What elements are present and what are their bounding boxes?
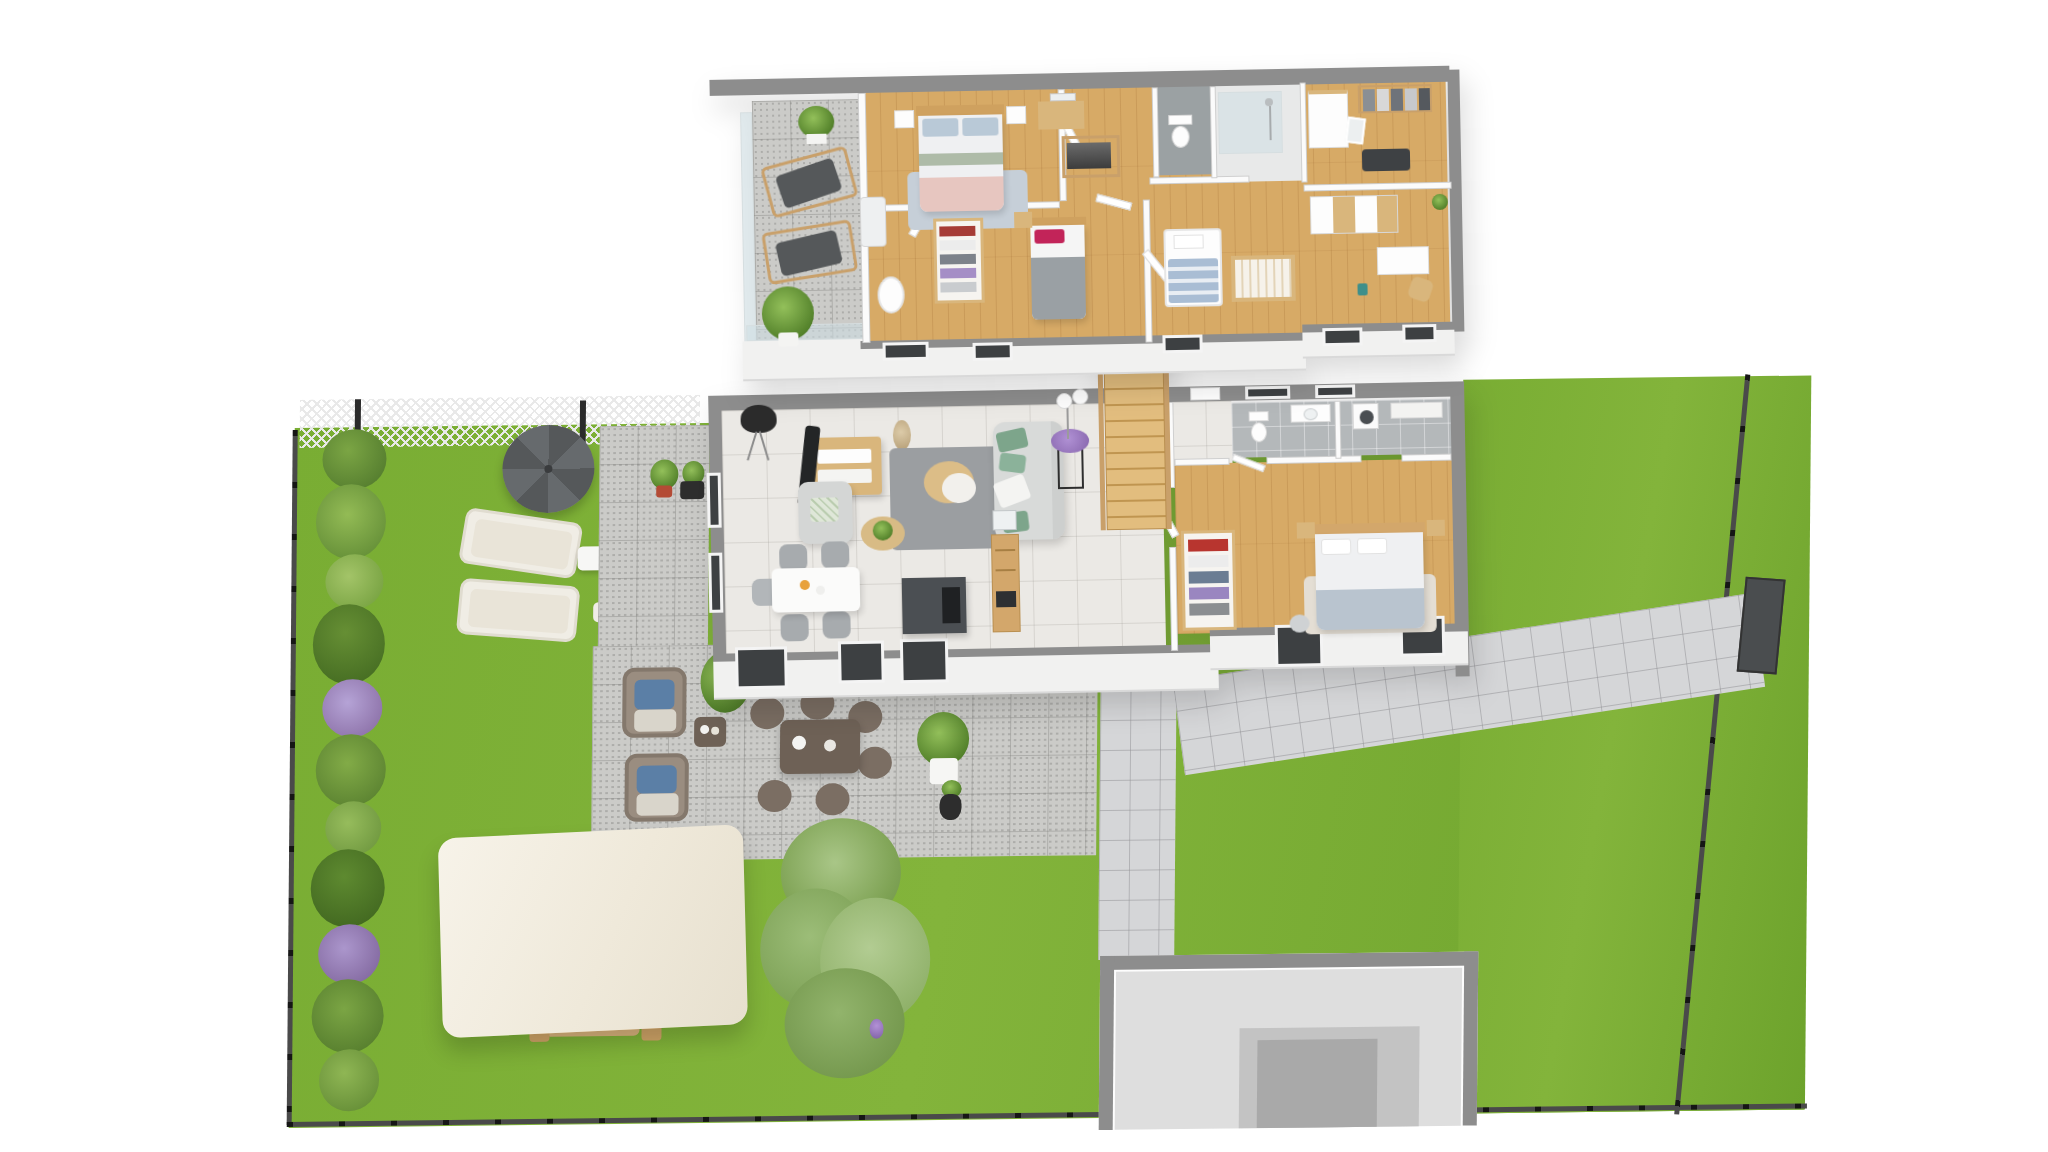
hedge-bush-purple xyxy=(318,924,381,985)
black-vase xyxy=(939,794,961,820)
hanging-clothes xyxy=(1363,89,1375,111)
leaning-mirror xyxy=(1345,117,1366,145)
clothes xyxy=(940,240,976,251)
toddler-bed xyxy=(1163,228,1222,307)
dark-rug xyxy=(1362,148,1410,171)
upper-window xyxy=(1162,335,1202,354)
office-desk xyxy=(1377,246,1430,275)
dresser xyxy=(1308,90,1349,149)
terrace-parapet-face xyxy=(742,339,869,381)
botanical-pillow xyxy=(810,497,838,522)
wall-bathroom-south xyxy=(1401,454,1451,462)
nightstand xyxy=(1014,212,1032,228)
washbasin-vanity xyxy=(1290,404,1330,423)
upper-floor xyxy=(705,44,1459,398)
path-vertical xyxy=(1098,689,1176,960)
hedge-bush xyxy=(322,429,387,490)
wardrobe-rack xyxy=(1181,530,1237,631)
plant-stand xyxy=(1057,437,1084,489)
clothes-rail xyxy=(1358,84,1433,113)
red-pot xyxy=(656,485,672,497)
large-tree xyxy=(759,807,931,1084)
dining-table xyxy=(771,567,860,613)
side-table-plant xyxy=(873,520,893,540)
ground-floor xyxy=(700,373,1481,713)
master-bed xyxy=(918,114,1004,212)
double-bed xyxy=(1315,532,1425,630)
armchair xyxy=(798,481,853,544)
toilet-tank xyxy=(1168,115,1192,125)
washing-machine xyxy=(1352,403,1378,429)
upper-window xyxy=(973,342,1013,361)
lounge-chair xyxy=(622,667,687,738)
walk-in-shower xyxy=(1218,91,1283,154)
plate xyxy=(824,739,836,751)
basement-door xyxy=(1257,1039,1378,1128)
pergola-canopy xyxy=(438,824,748,1038)
kids-bed xyxy=(1030,225,1086,320)
dining-chair xyxy=(780,614,809,642)
nightstand xyxy=(1427,520,1445,536)
window xyxy=(838,641,885,684)
pink-blanket xyxy=(919,176,1004,212)
toilet-tank xyxy=(1249,411,1269,421)
sage-band xyxy=(919,152,1003,166)
clothes xyxy=(1189,571,1229,584)
basement-wall xyxy=(1463,951,1479,1125)
hanging-clothes xyxy=(1391,89,1403,111)
clothes xyxy=(1188,555,1228,568)
window xyxy=(735,646,788,689)
bowl xyxy=(700,725,709,734)
toilet-bowl xyxy=(1251,422,1267,442)
shower-head xyxy=(1265,98,1273,106)
crib xyxy=(1231,255,1296,302)
deck-chair-canvas xyxy=(775,157,843,209)
front-door xyxy=(1190,387,1220,401)
lounger-cushion xyxy=(470,518,573,570)
black-pot xyxy=(680,481,704,499)
vanity-mirror xyxy=(1050,93,1076,101)
sofa-throw xyxy=(992,473,1031,509)
pampas-vase xyxy=(893,420,912,450)
outdoor-dining-table xyxy=(780,719,860,774)
sofa-cushion-green xyxy=(995,427,1029,453)
hedge-bush xyxy=(325,554,383,610)
sofa-cushion-green xyxy=(999,453,1027,474)
table-item xyxy=(800,580,810,590)
clothes xyxy=(1188,539,1228,552)
lounge-cushion-blue xyxy=(634,679,674,709)
blue-throw xyxy=(1316,588,1425,630)
gray-blanket xyxy=(1031,257,1086,320)
landing-railing xyxy=(1062,135,1121,178)
teal-bin xyxy=(1357,283,1367,295)
hedge-bush xyxy=(311,979,384,1054)
dining-chair xyxy=(821,541,850,569)
patio-door xyxy=(900,638,949,683)
west-window xyxy=(708,553,723,613)
pillow-blue xyxy=(962,117,998,136)
pillow-blue xyxy=(922,118,958,137)
washbasin xyxy=(1304,408,1318,420)
lounge-cushion xyxy=(636,793,678,816)
west-window xyxy=(707,473,722,528)
pillow xyxy=(1357,538,1387,555)
nightstand xyxy=(894,110,914,128)
clothes xyxy=(940,254,976,265)
vanity-desk xyxy=(1038,101,1085,130)
kitchen-shelf xyxy=(996,569,1016,571)
washer-door xyxy=(1360,410,1374,424)
lawn-right xyxy=(1457,375,1811,1113)
basement-wall xyxy=(1099,956,1115,1130)
basement-entry xyxy=(1099,951,1479,1130)
hedge-bush-purple xyxy=(322,679,383,738)
patio-side-table xyxy=(694,717,726,747)
clothes xyxy=(1189,603,1229,616)
hedge xyxy=(309,429,405,1120)
nightstand xyxy=(1297,522,1315,538)
kitchen-column xyxy=(991,534,1021,633)
clothes xyxy=(940,268,976,279)
sideboard xyxy=(1310,195,1399,235)
hanging-planter xyxy=(806,134,826,144)
tripod-lamp-head xyxy=(740,405,777,434)
induction-hob xyxy=(942,587,961,623)
north-window xyxy=(1245,386,1290,400)
hanging-clothes xyxy=(1419,88,1430,110)
table-item xyxy=(816,586,825,595)
upper-window xyxy=(1322,327,1362,346)
floor-plan-scene xyxy=(0,0,2048,1152)
lounge-cushion xyxy=(634,709,676,732)
hedge-bush xyxy=(319,1049,380,1112)
hanging-clothes xyxy=(1405,88,1417,110)
hedge-bush xyxy=(313,604,386,685)
pillow xyxy=(1321,539,1351,556)
tree-foliage xyxy=(784,967,905,1078)
upper-window xyxy=(882,342,928,361)
clothes xyxy=(940,282,976,293)
shower-column xyxy=(1269,106,1272,140)
coffee-table xyxy=(923,461,974,504)
bedroom-bench xyxy=(860,197,887,247)
glass-wall-cabinet xyxy=(992,510,1016,530)
kitchen-island xyxy=(902,577,967,634)
wall-bathroom-south xyxy=(1174,458,1229,466)
hedge-bush xyxy=(325,801,381,856)
pillow xyxy=(1173,234,1203,249)
wall-bath-laundry xyxy=(1334,401,1341,459)
deck-chair-canvas xyxy=(775,230,843,277)
hedge-bush xyxy=(315,734,386,807)
upper-window xyxy=(1402,324,1436,343)
sun-lounger xyxy=(456,578,581,643)
dining-chair xyxy=(822,611,851,639)
nightstand xyxy=(1006,106,1026,124)
bowl xyxy=(711,727,719,735)
palm-pot xyxy=(778,332,798,346)
upper-wall-east xyxy=(1447,70,1464,332)
plate xyxy=(792,736,806,750)
north-window xyxy=(1315,384,1355,398)
clothes-rack-master xyxy=(933,218,985,304)
lounge-cushion-blue xyxy=(637,765,677,793)
laundry-counter xyxy=(1390,402,1442,419)
clothes xyxy=(1189,587,1229,600)
hedge-bush xyxy=(310,849,385,928)
lounge-chair xyxy=(624,753,689,822)
lounger-cushion xyxy=(467,589,570,634)
hedge-bush xyxy=(316,484,387,560)
oven xyxy=(996,591,1016,607)
pillow-magenta xyxy=(1034,229,1064,244)
clothes xyxy=(939,226,975,237)
hanging-clothes xyxy=(1377,89,1389,111)
blue-blanket xyxy=(1168,258,1219,303)
tv-stand-drawer xyxy=(817,449,871,464)
kitchen-shelf xyxy=(995,549,1015,551)
